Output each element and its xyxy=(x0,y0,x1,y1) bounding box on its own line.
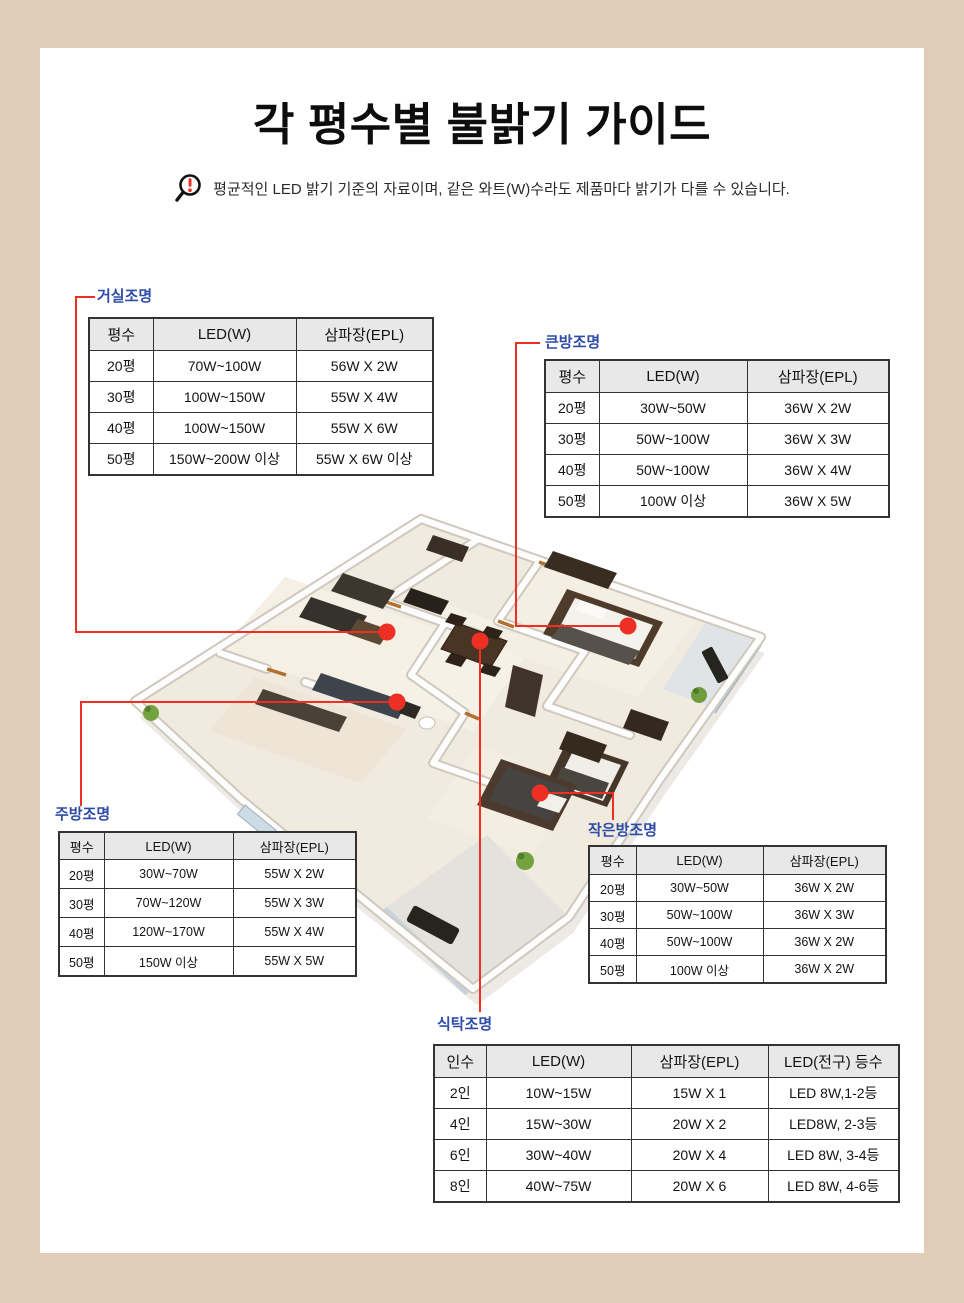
table-row: 6인30W~40W20W X 4LED 8W, 3-4등 xyxy=(434,1140,899,1171)
bigroom-table: 평수 LED(W) 삼파장(EPL) 20평30W~50W36W X 2W 30… xyxy=(544,359,890,518)
table-row: 20평30W~70W55W X 2W xyxy=(59,860,356,889)
living-table: 평수 LED(W) 삼파장(EPL) 20평70W~100W56W X 2W 3… xyxy=(88,317,434,476)
magnifier-exclamation-icon xyxy=(174,172,204,204)
living-table-label: 거실조명 xyxy=(97,289,152,305)
smallroom-table-label: 작은방조명 xyxy=(588,823,657,839)
table-row: 30평50W~100W36W X 3W xyxy=(589,902,886,929)
table-row: 50평100W 이상36W X 2W xyxy=(589,956,886,984)
table-row: 40평50W~100W36W X 4W xyxy=(545,455,889,486)
table-row: 2인10W~15W15W X 1LED 8W,1-2등 xyxy=(434,1078,899,1109)
col-header: 평수 xyxy=(545,360,599,393)
col-header: 삼파장(EPL) xyxy=(296,318,433,351)
table-row: 50평150W~200W 이상55W X 6W 이상 xyxy=(89,444,433,476)
bigroom-table-label: 큰방조명 xyxy=(545,335,600,351)
table-row: 40평120W~170W55W X 4W xyxy=(59,918,356,947)
smallroom-table: 평수 LED(W) 삼파장(EPL) 20평30W~50W36W X 2W 30… xyxy=(588,845,887,984)
table-header-row: 인수 LED(W) 삼파장(EPL) LED(전구) 등수 xyxy=(434,1045,899,1078)
col-header: 평수 xyxy=(59,832,104,860)
col-header: 삼파장(EPL) xyxy=(233,832,356,860)
infographic-page: 각 평수별 불밝기 가이드 평균적인 LED 밝기 기준의 자료이며, 같은 와… xyxy=(0,0,964,1303)
col-header: 인수 xyxy=(434,1045,486,1078)
col-header: 평수 xyxy=(589,846,636,875)
col-header: LED(W) xyxy=(104,832,233,860)
col-header: 삼파장(EPL) xyxy=(631,1045,768,1078)
table-row: 40평100W~150W55W X 6W xyxy=(89,413,433,444)
col-header: 삼파장(EPL) xyxy=(763,846,886,875)
table-row: 40평50W~100W36W X 2W xyxy=(589,929,886,956)
table-header-row: 평수 LED(W) 삼파장(EPL) xyxy=(59,832,356,860)
col-header: 삼파장(EPL) xyxy=(747,360,889,393)
table-row: 30평50W~100W36W X 3W xyxy=(545,424,889,455)
notice-row: 평균적인 LED 밝기 기준의 자료이며, 같은 와트(W)수라도 제품마다 밝… xyxy=(0,172,964,204)
kitchen-table-label: 주방조명 xyxy=(55,807,110,823)
notice-text: 평균적인 LED 밝기 기준의 자료이며, 같은 와트(W)수라도 제품마다 밝… xyxy=(213,178,790,199)
dining-table: 인수 LED(W) 삼파장(EPL) LED(전구) 등수 2인10W~15W1… xyxy=(433,1044,900,1203)
col-header: 평수 xyxy=(89,318,153,351)
col-header: LED(전구) 등수 xyxy=(768,1045,899,1078)
col-header: LED(W) xyxy=(153,318,296,351)
table-row: 50평150W 이상55W X 5W xyxy=(59,947,356,977)
col-header: LED(W) xyxy=(599,360,747,393)
col-header: LED(W) xyxy=(486,1045,631,1078)
table-header-row: 평수 LED(W) 삼파장(EPL) xyxy=(89,318,433,351)
table-row: 20평30W~50W36W X 2W xyxy=(545,393,889,424)
table-row: 30평100W~150W55W X 4W xyxy=(89,382,433,413)
table-row: 50평100W 이상36W X 5W xyxy=(545,486,889,518)
page-title: 각 평수별 불밝기 가이드 xyxy=(0,88,964,153)
table-row: 8인40W~75W20W X 6LED 8W, 4-6등 xyxy=(434,1171,899,1203)
table-row: 4인15W~30W20W X 2LED8W, 2-3등 xyxy=(434,1109,899,1140)
table-header-row: 평수 LED(W) 삼파장(EPL) xyxy=(589,846,886,875)
table-row: 20평30W~50W36W X 2W xyxy=(589,875,886,902)
col-header: LED(W) xyxy=(636,846,763,875)
dining-table-label: 식탁조명 xyxy=(437,1017,492,1033)
table-row: 20평70W~100W56W X 2W xyxy=(89,351,433,382)
kitchen-table: 평수 LED(W) 삼파장(EPL) 20평30W~70W55W X 2W 30… xyxy=(58,831,357,977)
table-row: 30평70W~120W55W X 3W xyxy=(59,889,356,918)
table-header-row: 평수 LED(W) 삼파장(EPL) xyxy=(545,360,889,393)
